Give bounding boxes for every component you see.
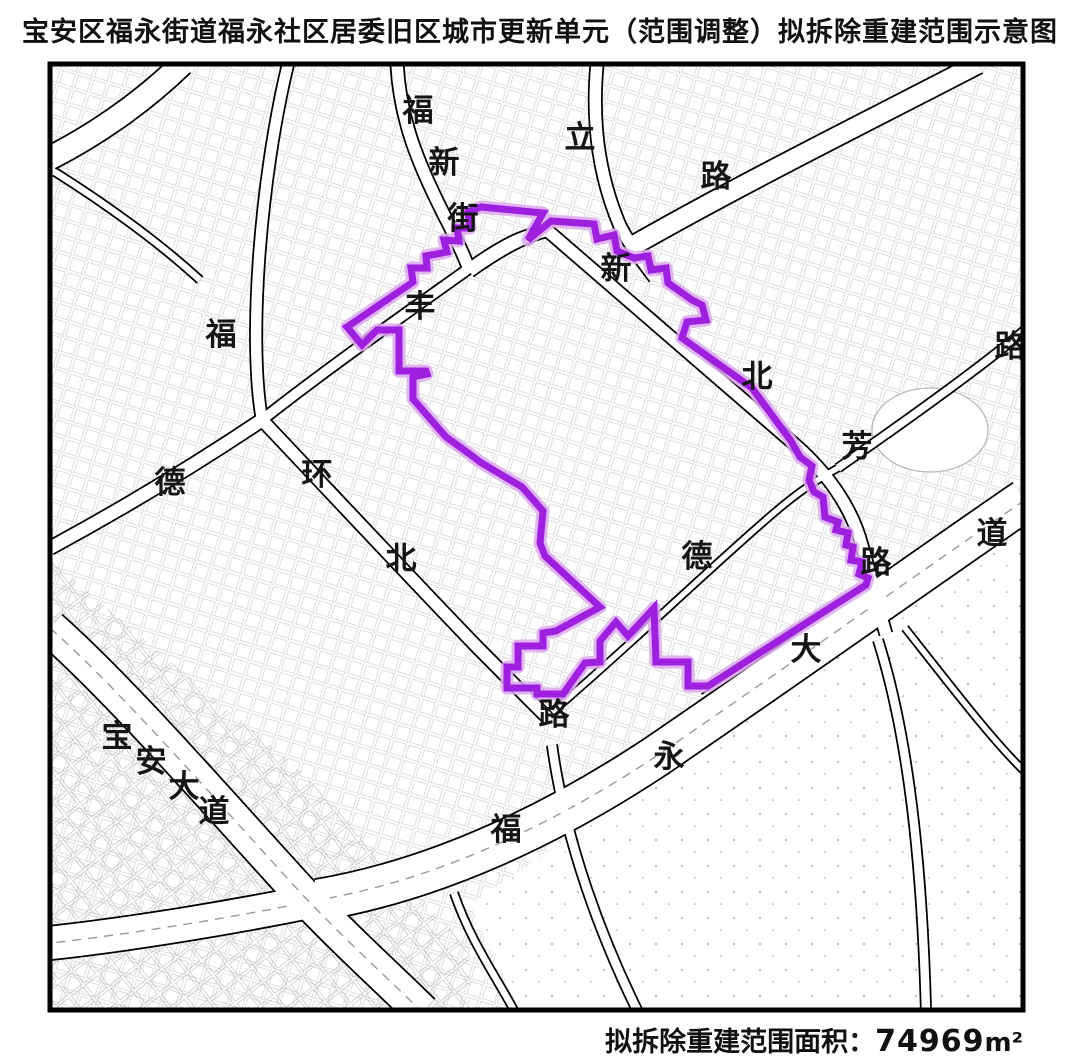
road-label: 新 — [429, 145, 460, 181]
road-label: 大 — [169, 769, 200, 805]
map-canvas: 福新街立路新丰福北路芳德环道北德路大路永宝安大道福 — [0, 0, 1080, 1061]
area-statement: 拟拆除重建范围面积：74969m² — [605, 1020, 1023, 1059]
road-label: 丰 — [405, 289, 436, 325]
road-label: 北 — [742, 359, 773, 395]
road-label: 北 — [386, 541, 417, 577]
area-unit: m² — [985, 1028, 1023, 1058]
road-label: 环 — [302, 457, 333, 493]
road-label: 德 — [155, 465, 186, 501]
road-label: 新 — [601, 251, 632, 287]
road-label: 立 — [565, 120, 596, 156]
road-label: 永 — [654, 739, 685, 775]
road-label: 福 — [402, 93, 434, 129]
road-label: 大 — [791, 632, 822, 668]
road-label: 安 — [136, 744, 167, 780]
road-label: 福 — [490, 812, 522, 848]
road-label: 路 — [539, 697, 571, 733]
road-label: 德 — [682, 539, 713, 575]
road-label: 街 — [447, 201, 479, 237]
road-label: 芳 — [842, 429, 873, 465]
road-label: 道 — [199, 794, 230, 830]
road-label: 路 — [861, 545, 893, 581]
schematic-map-page: 宝安区福永街道福永社区居委旧区城市更新单元（范围调整）拟拆除重建范围示意图 — [0, 0, 1080, 1061]
road-label: 宝 — [102, 719, 133, 755]
area-label: 拟拆除重建范围面积： — [605, 1027, 875, 1058]
road-label: 路 — [701, 159, 733, 195]
road-label: 道 — [977, 516, 1008, 552]
area-value: 74969 — [875, 1024, 984, 1059]
road-label: 福 — [205, 317, 237, 353]
